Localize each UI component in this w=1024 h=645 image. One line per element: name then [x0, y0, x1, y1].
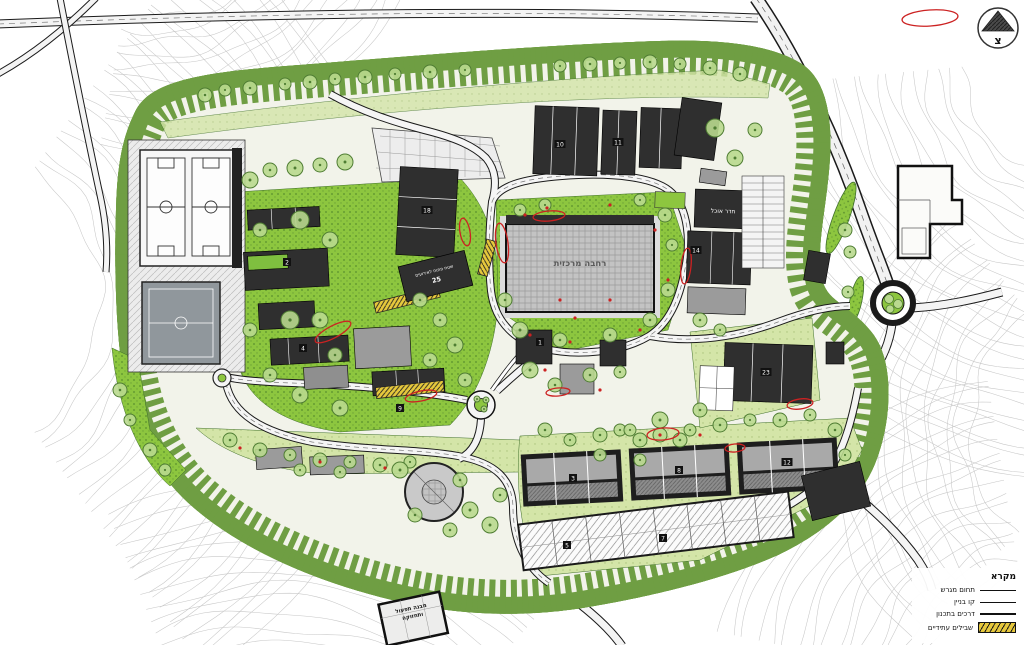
north-letter: צ	[994, 34, 1001, 47]
legend: מקרא תחום מגרש קו בניין דרכים בתכנון שבי…	[912, 568, 1022, 643]
building-number: 4	[301, 346, 305, 353]
dining-hall-label: חדר אוכל	[711, 208, 736, 216]
building-number: 11	[614, 140, 622, 147]
building-number: 10	[556, 142, 564, 149]
legend-row: שבילים עתידיים	[916, 622, 1016, 633]
legend-symbol-yellow-hatch	[978, 622, 1016, 633]
legend-label: שבילים עתידיים	[928, 624, 973, 632]
building-number: 18	[423, 208, 431, 215]
legend-title: מקרא	[916, 572, 1016, 582]
legend-row: תחום מגרש	[916, 586, 1016, 594]
building-number: 8	[677, 468, 681, 475]
building-number: 2	[285, 260, 289, 267]
legend-symbol-line	[980, 590, 1016, 591]
building-number: 7	[661, 536, 665, 543]
building-number: 14	[692, 248, 700, 255]
central-plaza: רחבה מרכזית	[506, 215, 654, 312]
building-number: 5	[565, 543, 569, 550]
legend-label: תחום מגרש	[940, 586, 975, 594]
north-arrow: צ	[976, 6, 1020, 50]
building-number: 12	[783, 460, 791, 467]
legend-row: קו בניין	[916, 598, 1016, 606]
building-number: 1	[538, 340, 542, 347]
legend-row: דרכים בתכנון	[916, 610, 1016, 618]
legend-label: דרכים בתכנון	[936, 610, 975, 618]
building-number: 9	[398, 406, 402, 413]
site-plan-canvas: רחבה מרכזית שטח פתוח לאירועים 25 חדר אוכ…	[0, 0, 1024, 645]
legend-label: קו בניין	[954, 598, 975, 606]
legend-symbol-thick-line	[980, 613, 1016, 615]
building-number: 3	[571, 476, 575, 483]
legend-symbol-line	[980, 602, 1016, 603]
building-number: 23	[762, 370, 770, 377]
site-plan: רחבה מרכזית שטח פתוח לאירועים 25 חדר אוכ…	[0, 0, 1024, 645]
central-plaza-label: רחבה מרכזית	[554, 259, 607, 269]
